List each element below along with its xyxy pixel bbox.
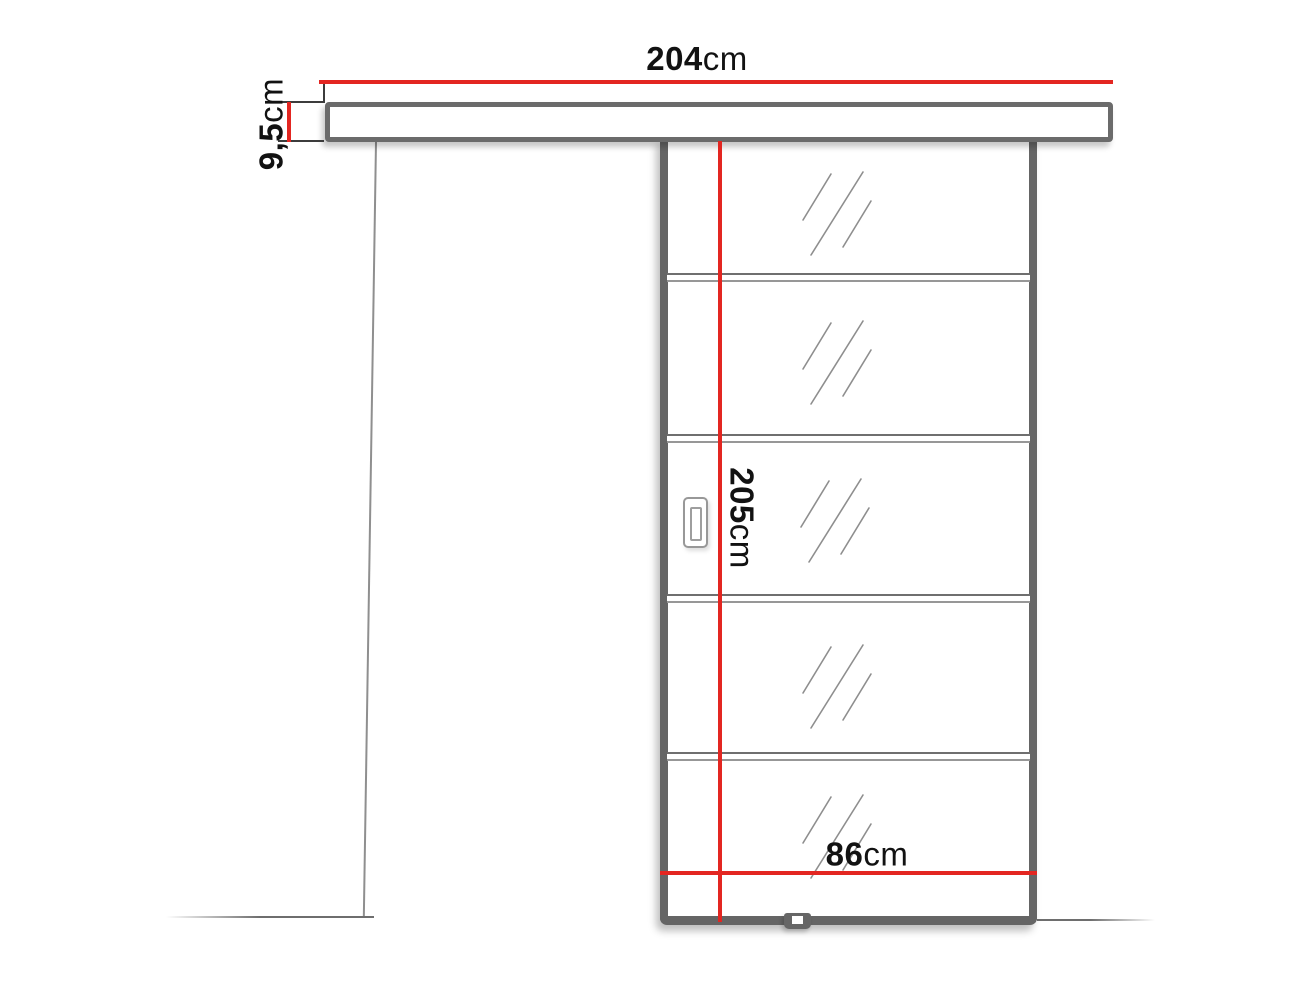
glass-glint-icon	[798, 470, 874, 564]
door-width-dimension-label: 86cm	[826, 838, 909, 871]
rail-height-dimension-label: 9,5cm	[255, 78, 288, 170]
top-rail	[325, 102, 1113, 142]
glass-glint-icon	[800, 163, 876, 257]
glass-glint-icon	[800, 312, 876, 406]
glass-glint-icon	[800, 636, 876, 730]
door-handle	[683, 497, 708, 548]
door-width-unit: cm	[863, 836, 908, 873]
door-width-value: 86	[826, 836, 864, 873]
sliding-door-panel	[660, 138, 1037, 925]
rail-width-dimension-label: 204cm	[646, 42, 748, 75]
door-height-value: 205	[724, 467, 761, 524]
rail-height-value: 9,5	[253, 123, 290, 170]
floor-line-right	[1037, 919, 1155, 921]
dimension-diagram: 204cm 9,5cm 205cm 86cm	[0, 0, 1312, 984]
wall-reference-line	[363, 142, 377, 918]
rail-width-value: 204	[646, 40, 703, 77]
rail-height-unit: cm	[253, 78, 290, 123]
rail-width-unit: cm	[703, 40, 748, 77]
door-height-unit: cm	[724, 524, 761, 569]
floor-line-left	[166, 916, 374, 918]
door-height-dimension-label: 205cm	[726, 467, 759, 569]
door-height-dimension-line	[718, 141, 722, 922]
rail-width-dimension-line	[319, 80, 1113, 84]
door-handle-inset	[690, 507, 702, 541]
floor-guide-hole	[792, 916, 803, 924]
